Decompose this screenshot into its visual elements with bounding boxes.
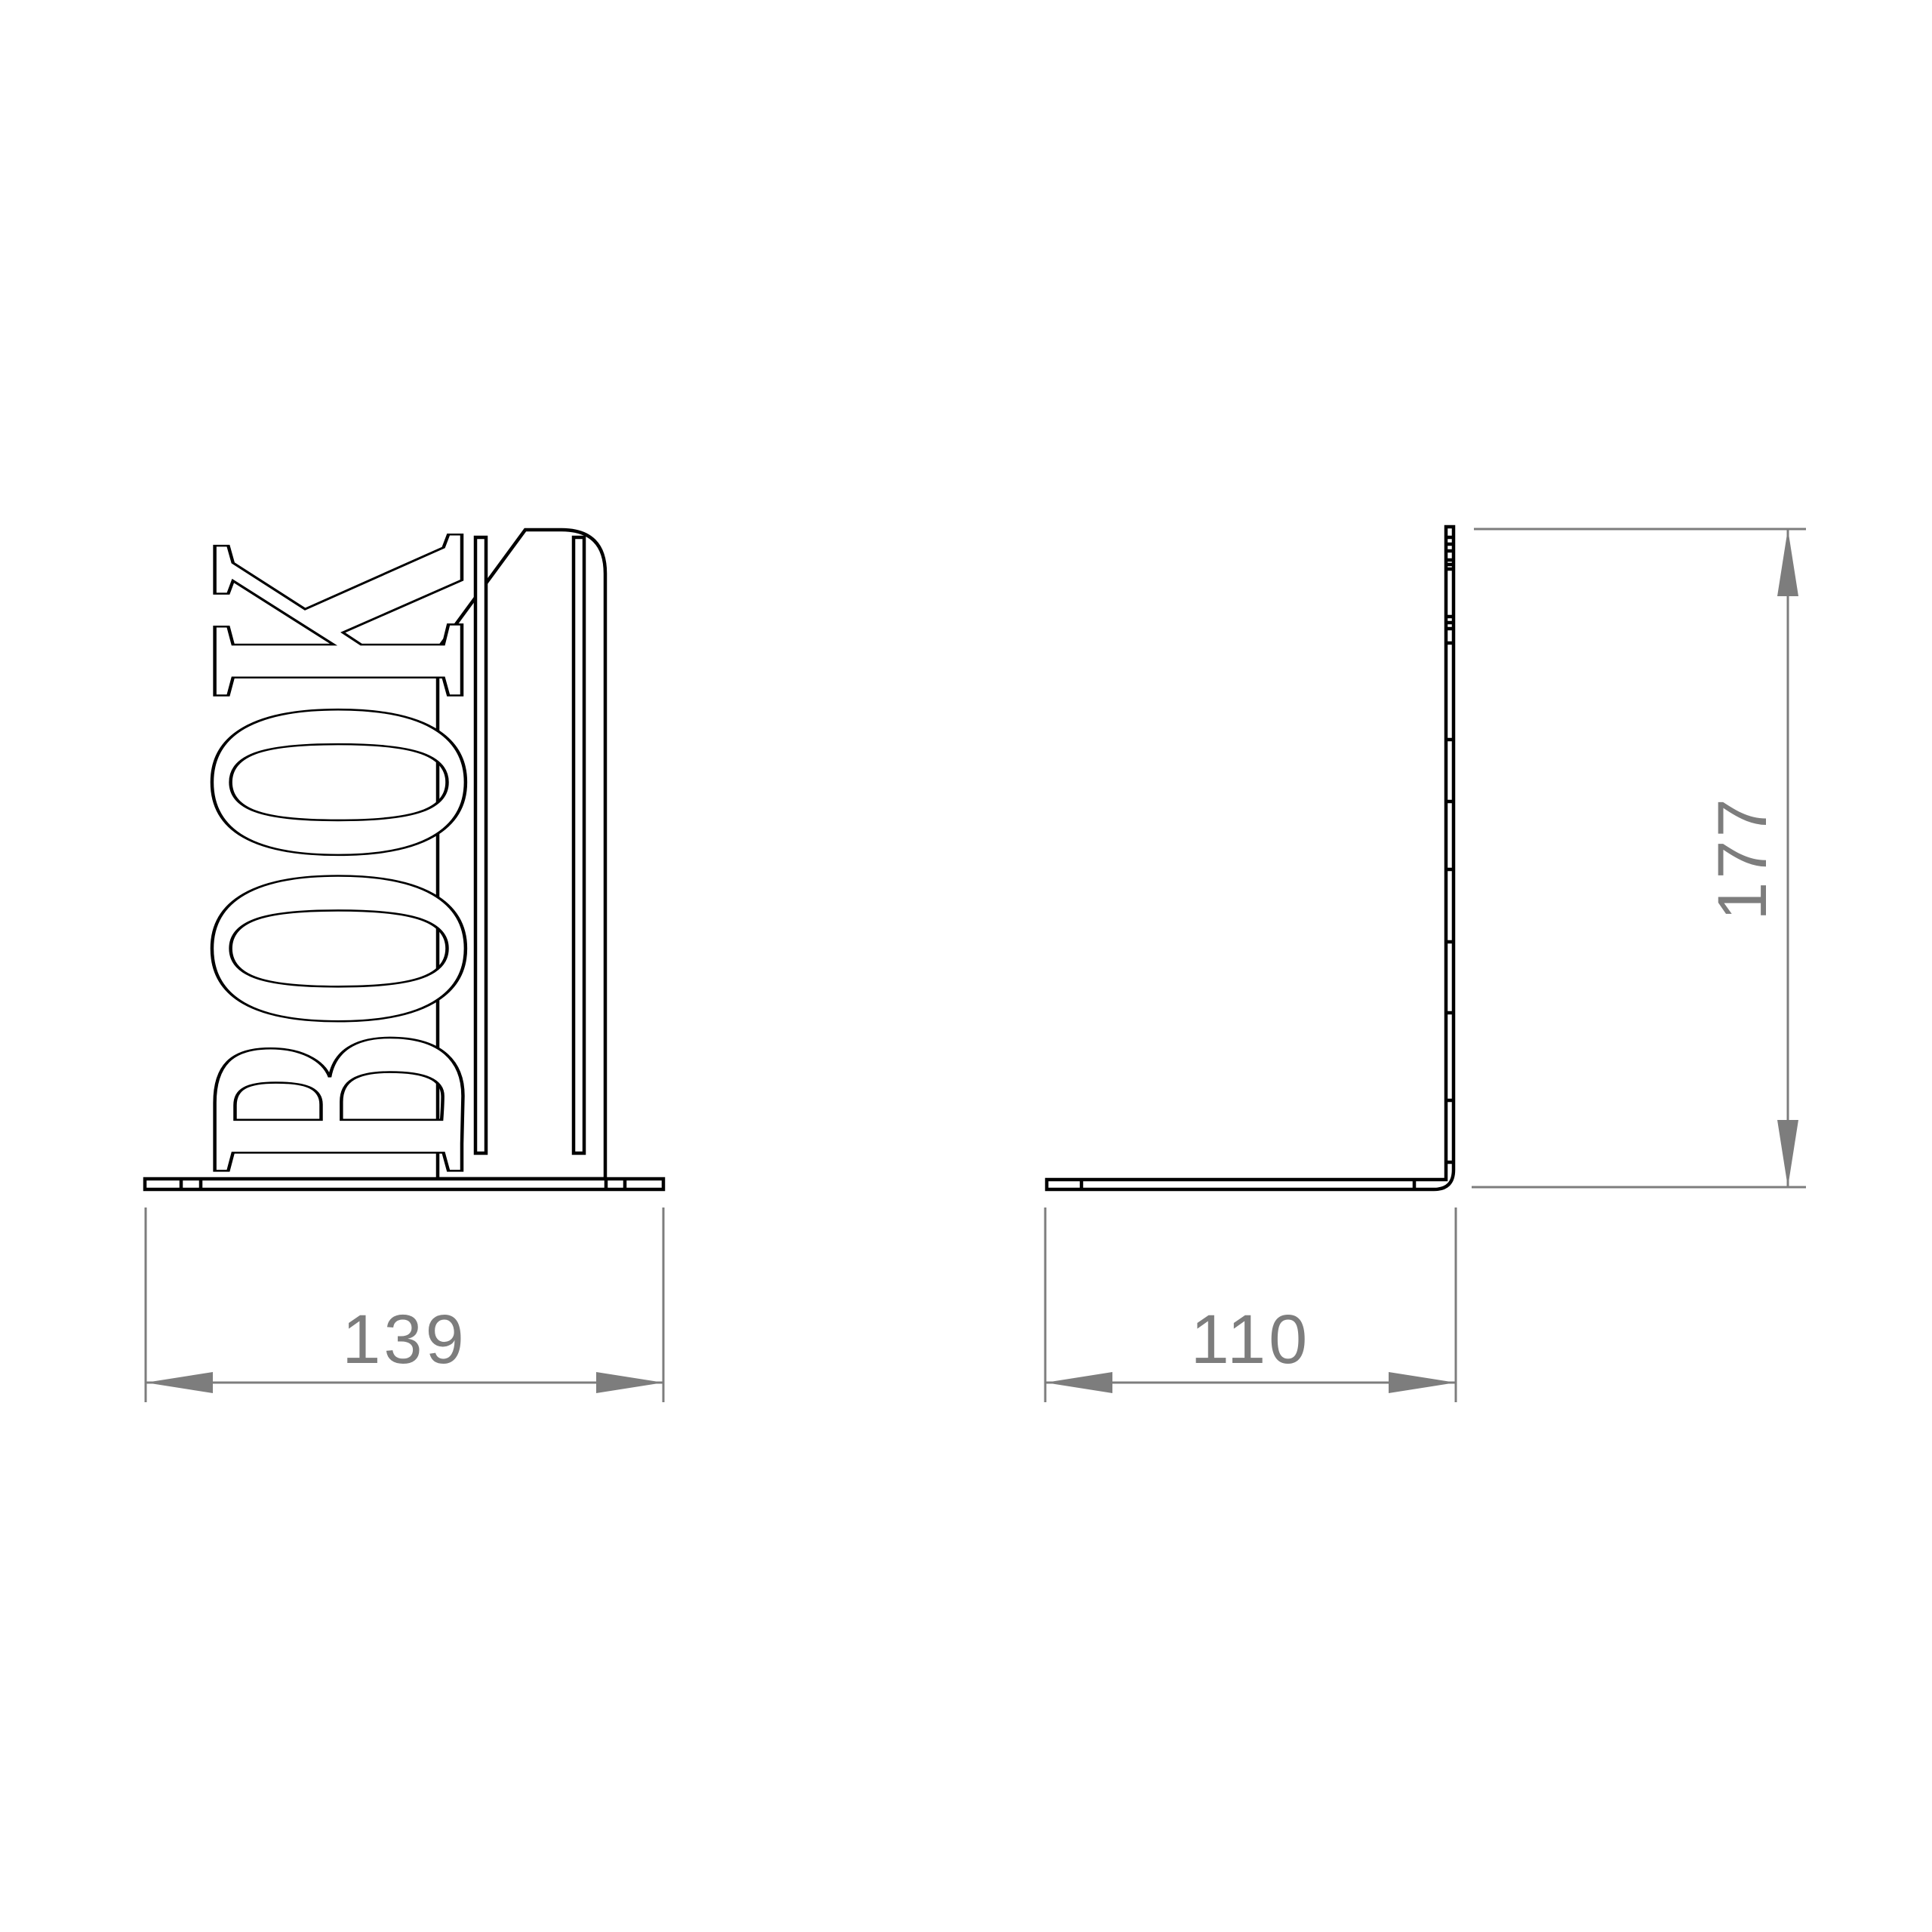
side-view (1047, 527, 1455, 1189)
dimension-width-arrow-left (146, 1372, 213, 1393)
dimension-depth-label: 110 (1191, 1301, 1311, 1378)
dimension-height-arrow-top (1777, 529, 1798, 596)
dimension-depth-arrow-right (1389, 1372, 1456, 1393)
front-panel-slot-right (574, 537, 584, 1153)
dimension-height: 177 (1472, 529, 1806, 1187)
dimension-depth: 110 (1045, 1207, 1456, 1402)
dimension-depth-arrow-left (1045, 1372, 1112, 1393)
dimension-height-arrow-bottom (1777, 1120, 1798, 1187)
technical-drawing: BOOK 139 110 (0, 0, 1932, 1932)
dimension-height-label: 177 (1704, 795, 1781, 921)
side-profile-outline (1047, 527, 1454, 1189)
drawing-canvas: BOOK 139 110 (0, 0, 1932, 1932)
book-stencil-text: BOOK (126, 532, 544, 1174)
front-base-plate (145, 1179, 663, 1189)
dimension-width-label: 139 (342, 1301, 467, 1378)
dimension-width: 139 (146, 1207, 663, 1402)
front-view: BOOK (126, 530, 663, 1189)
dimension-width-arrow-right (596, 1372, 663, 1393)
